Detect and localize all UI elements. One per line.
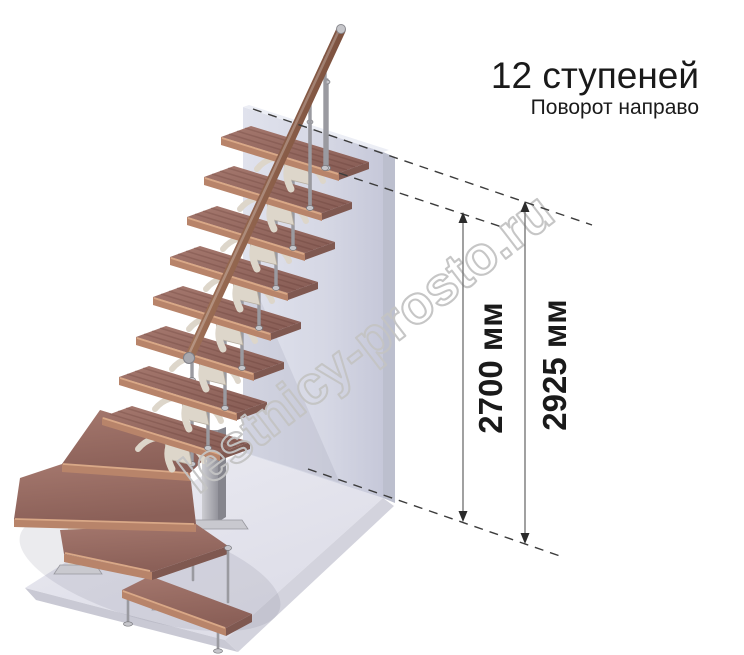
page-title: 12 ступеней bbox=[491, 55, 699, 96]
page-subtitle: Поворот направо bbox=[531, 96, 699, 119]
dimension-2700-label: 2700 мм bbox=[472, 302, 509, 433]
header: 12 ступеней Поворот направо bbox=[491, 55, 699, 119]
stair-diagram-page: lestnicy-prosto.ru 2700 мм 2925 мм 12 ст… bbox=[0, 0, 744, 655]
staircase-diagram: lestnicy-prosto.ru 2700 мм 2925 мм 12 ст… bbox=[0, 0, 744, 655]
dimension-2925-label: 2925 мм bbox=[536, 299, 573, 430]
handrail-end-cap bbox=[184, 353, 195, 364]
handrail-top-cap bbox=[337, 25, 346, 34]
